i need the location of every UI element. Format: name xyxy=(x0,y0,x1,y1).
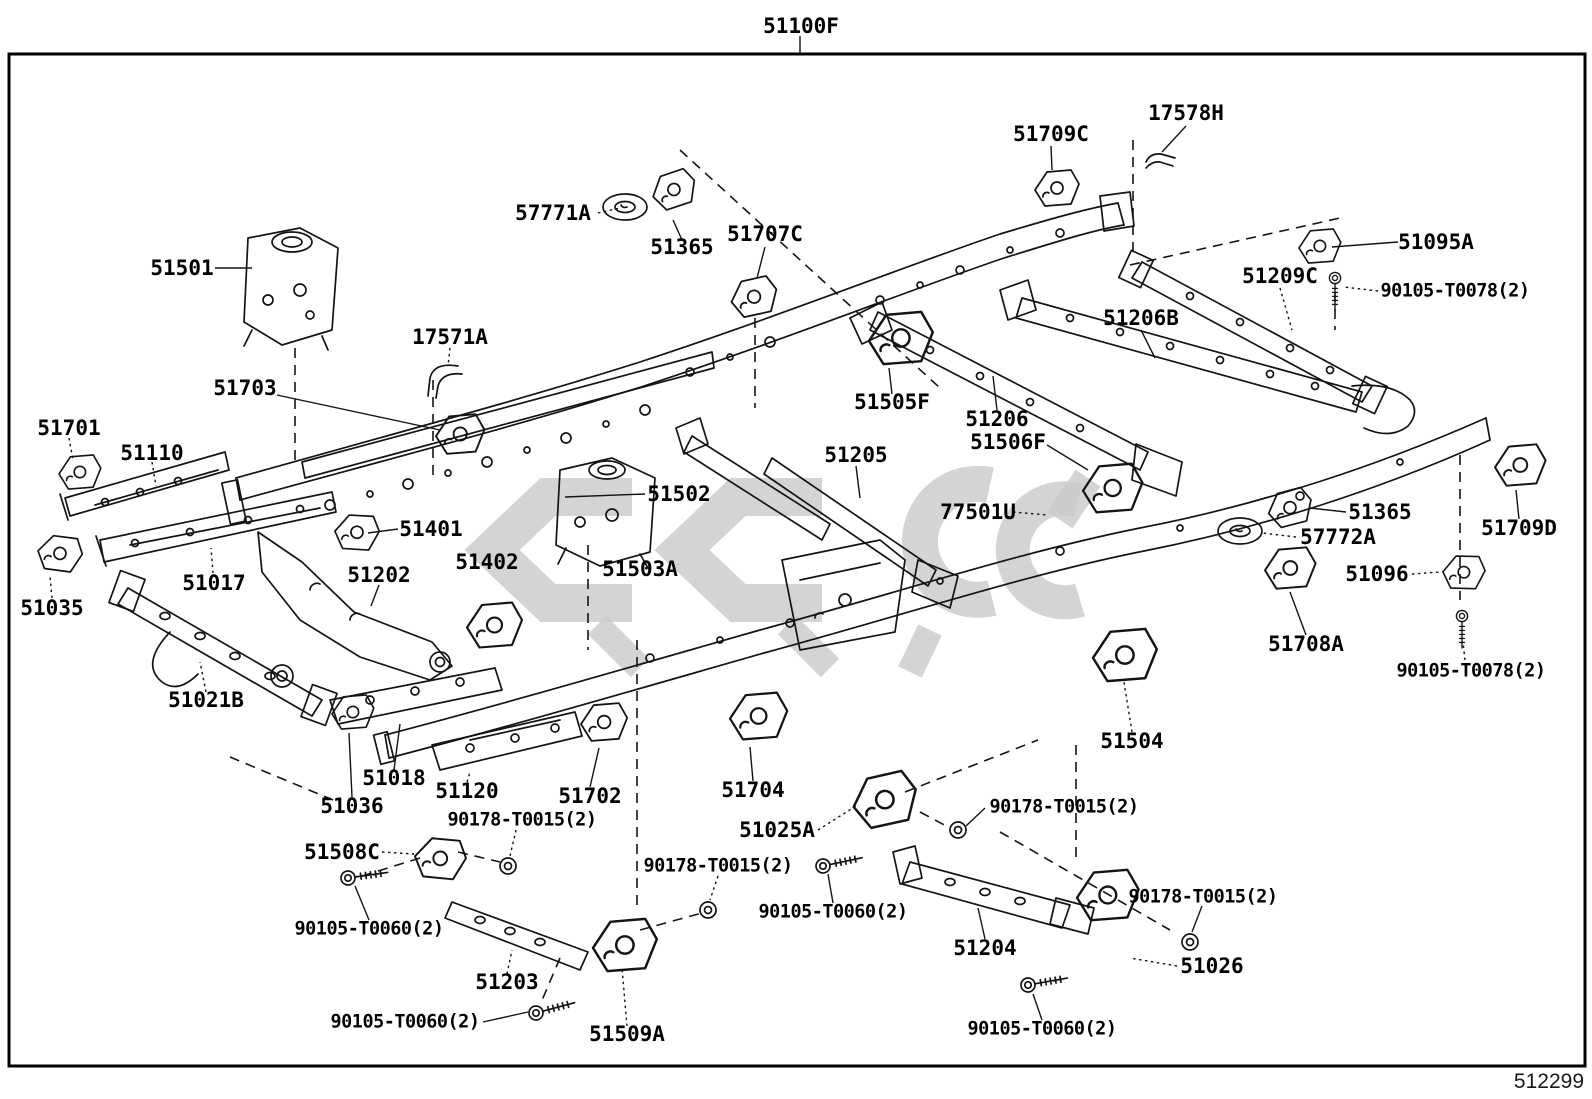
part-label-51025a: 51025A xyxy=(739,818,815,842)
part-label-51402: 51402 xyxy=(455,550,518,574)
part-label-51509a: 51509A xyxy=(589,1022,665,1046)
part-label-51504: 51504 xyxy=(1100,729,1163,753)
part-label-51202: 51202 xyxy=(347,563,410,587)
part-label-51096: 51096 xyxy=(1345,562,1408,586)
part-label-51703: 51703 xyxy=(213,376,276,400)
part-label-51707c: 51707C xyxy=(727,222,803,246)
part-label-51702: 51702 xyxy=(558,784,621,808)
part-label-51035: 51035 xyxy=(20,596,83,620)
part-label-51206b: 51206B xyxy=(1103,306,1179,330)
part-label-90105-t0060(2): 90105-T0060(2) xyxy=(331,1012,480,1033)
part-label-51503a: 51503A xyxy=(602,557,678,581)
part-label-90105-t0060(2): 90105-T0060(2) xyxy=(759,902,908,923)
part-label-17571a: 17571A xyxy=(412,325,488,349)
part-label-90105-t0060(2): 90105-T0060(2) xyxy=(968,1019,1117,1040)
part-label-51017: 51017 xyxy=(182,571,245,595)
part-label-90105-t0078(2): 90105-T0078(2) xyxy=(1397,661,1546,682)
part-label-51701: 51701 xyxy=(37,416,100,440)
part-label-51203: 51203 xyxy=(475,970,538,994)
part-label-51501: 51501 xyxy=(150,256,213,280)
part-label-51505f: 51505F xyxy=(854,390,930,414)
part-label-51205: 51205 xyxy=(824,443,887,467)
part-label-51110: 51110 xyxy=(120,441,183,465)
part-label-51401: 51401 xyxy=(399,517,462,541)
part-label-51365: 51365 xyxy=(1348,500,1411,524)
part-label-51204: 51204 xyxy=(953,936,1016,960)
part-label-90178-t0015(2): 90178-T0015(2) xyxy=(644,856,793,877)
part-label-51100f: 51100F xyxy=(763,14,839,38)
part-label-51709c: 51709C xyxy=(1013,122,1089,146)
part-label-90178-t0015(2): 90178-T0015(2) xyxy=(990,797,1139,818)
part-label-90178-t0015(2): 90178-T0015(2) xyxy=(448,810,597,831)
part-label-51021b: 51021B xyxy=(168,688,244,712)
part-label-51709d: 51709D xyxy=(1481,516,1557,540)
part-label-51036: 51036 xyxy=(320,794,383,818)
part-label-57771a: 57771A xyxy=(515,201,591,225)
part-label-51502: 51502 xyxy=(647,482,710,506)
parts-diagram-page: 51100F51709C17578H57771A5136551707C51095… xyxy=(0,0,1592,1099)
part-label-90105-t0078(2): 90105-T0078(2) xyxy=(1381,281,1530,302)
part-label-51506f: 51506F xyxy=(970,430,1046,454)
part-label-51206: 51206 xyxy=(965,407,1028,431)
part-label-17578h: 17578H xyxy=(1148,101,1224,125)
part-label-51365: 51365 xyxy=(650,235,713,259)
frame-diagram-artwork xyxy=(0,0,1592,1099)
part-label-51704: 51704 xyxy=(721,778,784,802)
part-label-51120: 51120 xyxy=(435,779,498,803)
part-label-51508c: 51508C xyxy=(304,840,380,864)
part-label-51708a: 51708A xyxy=(1268,632,1344,656)
part-label-51095a: 51095A xyxy=(1398,230,1474,254)
part-label-57772a: 57772A xyxy=(1300,525,1376,549)
part-label-51209c: 51209C xyxy=(1242,264,1318,288)
part-label-51026: 51026 xyxy=(1180,954,1243,978)
part-label-51018: 51018 xyxy=(362,766,425,790)
part-label-77501u: 77501U xyxy=(940,500,1016,524)
part-label-90105-t0060(2): 90105-T0060(2) xyxy=(295,919,444,940)
part-label-90178-t0015(2): 90178-T0015(2) xyxy=(1129,887,1278,908)
sheet-number: 512299 xyxy=(1514,1070,1584,1094)
